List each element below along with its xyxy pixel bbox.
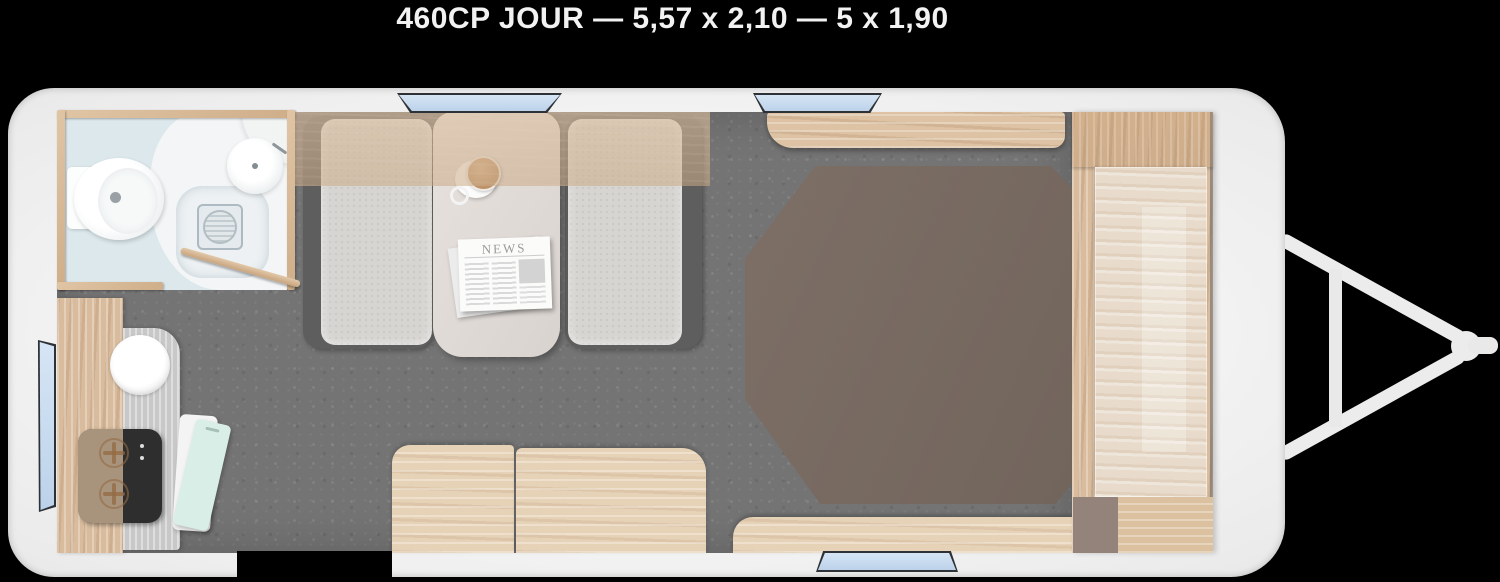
- newspaper-text-lines: [519, 285, 546, 304]
- fridge-handle-icon: [205, 427, 219, 433]
- newspaper-photo-block: [519, 259, 546, 284]
- hitch-drawbar-bottom: [1277, 348, 1467, 462]
- hob-dot: [140, 444, 144, 448]
- entry-door-opening: [237, 551, 392, 582]
- window-top-bed: [753, 93, 882, 113]
- bathroom-wall-left: [57, 110, 65, 290]
- newspaper-text-column: [465, 261, 491, 306]
- caravan-floorplan: NEWS 460CP JOUR — 5,57 x 2,10 — 5 x 1,90: [0, 0, 1500, 582]
- window-glass: [399, 95, 560, 111]
- hitch-coupling-stub: [1468, 337, 1498, 354]
- wardrobe-step: [1073, 497, 1118, 553]
- window-glass: [755, 95, 880, 111]
- window-glass: [818, 553, 956, 570]
- window-top-dinette: [397, 93, 562, 113]
- hitch-drawbar-top: [1277, 232, 1467, 346]
- basin-plug-icon: [252, 163, 258, 169]
- wardrobe-top-band: [1072, 112, 1213, 167]
- burner-icon: [99, 438, 129, 468]
- wardrobe-base: [1118, 497, 1213, 553]
- overhead-lockers: [295, 112, 710, 186]
- window-left-kitchen: [37, 340, 56, 512]
- hob-dot: [140, 456, 144, 460]
- burner-icon: [99, 479, 129, 509]
- lower-cabinet-right: [516, 448, 706, 553]
- toilet-drain-icon: [110, 192, 121, 203]
- newspaper-title: NEWS: [464, 240, 545, 259]
- wardrobe-door-inner: [1142, 207, 1186, 452]
- newspaper: NEWS: [458, 236, 552, 311]
- bathroom-wall-top: [57, 110, 295, 118]
- window-bottom-bed: [816, 551, 958, 572]
- cup-handle-icon: [450, 186, 469, 205]
- double-bed-mattress: [745, 166, 1072, 504]
- bed-side-cabinet: [733, 517, 1072, 553]
- newspaper-text-column: [492, 260, 518, 305]
- bathroom-wall-right: [287, 110, 295, 290]
- newspaper-photo-column: [519, 259, 547, 304]
- lower-cabinet-left: [392, 445, 514, 553]
- wardrobe: [1072, 112, 1213, 553]
- newspaper-columns: [465, 259, 546, 306]
- plan-title: 460CP JOUR — 5,57 x 2,10 — 5 x 1,90: [0, 2, 1345, 36]
- hitch-crossbar: [1329, 269, 1342, 427]
- bathroom-wall-bottom: [57, 282, 163, 290]
- window-glass: [39, 342, 54, 510]
- drain-grate-icon: [203, 210, 237, 244]
- bed-head-shelf: [767, 112, 1065, 148]
- kitchen-sink-icon: [110, 335, 170, 395]
- shower-drain-icon: [197, 204, 243, 250]
- toilet-bowl-inner: [98, 168, 158, 234]
